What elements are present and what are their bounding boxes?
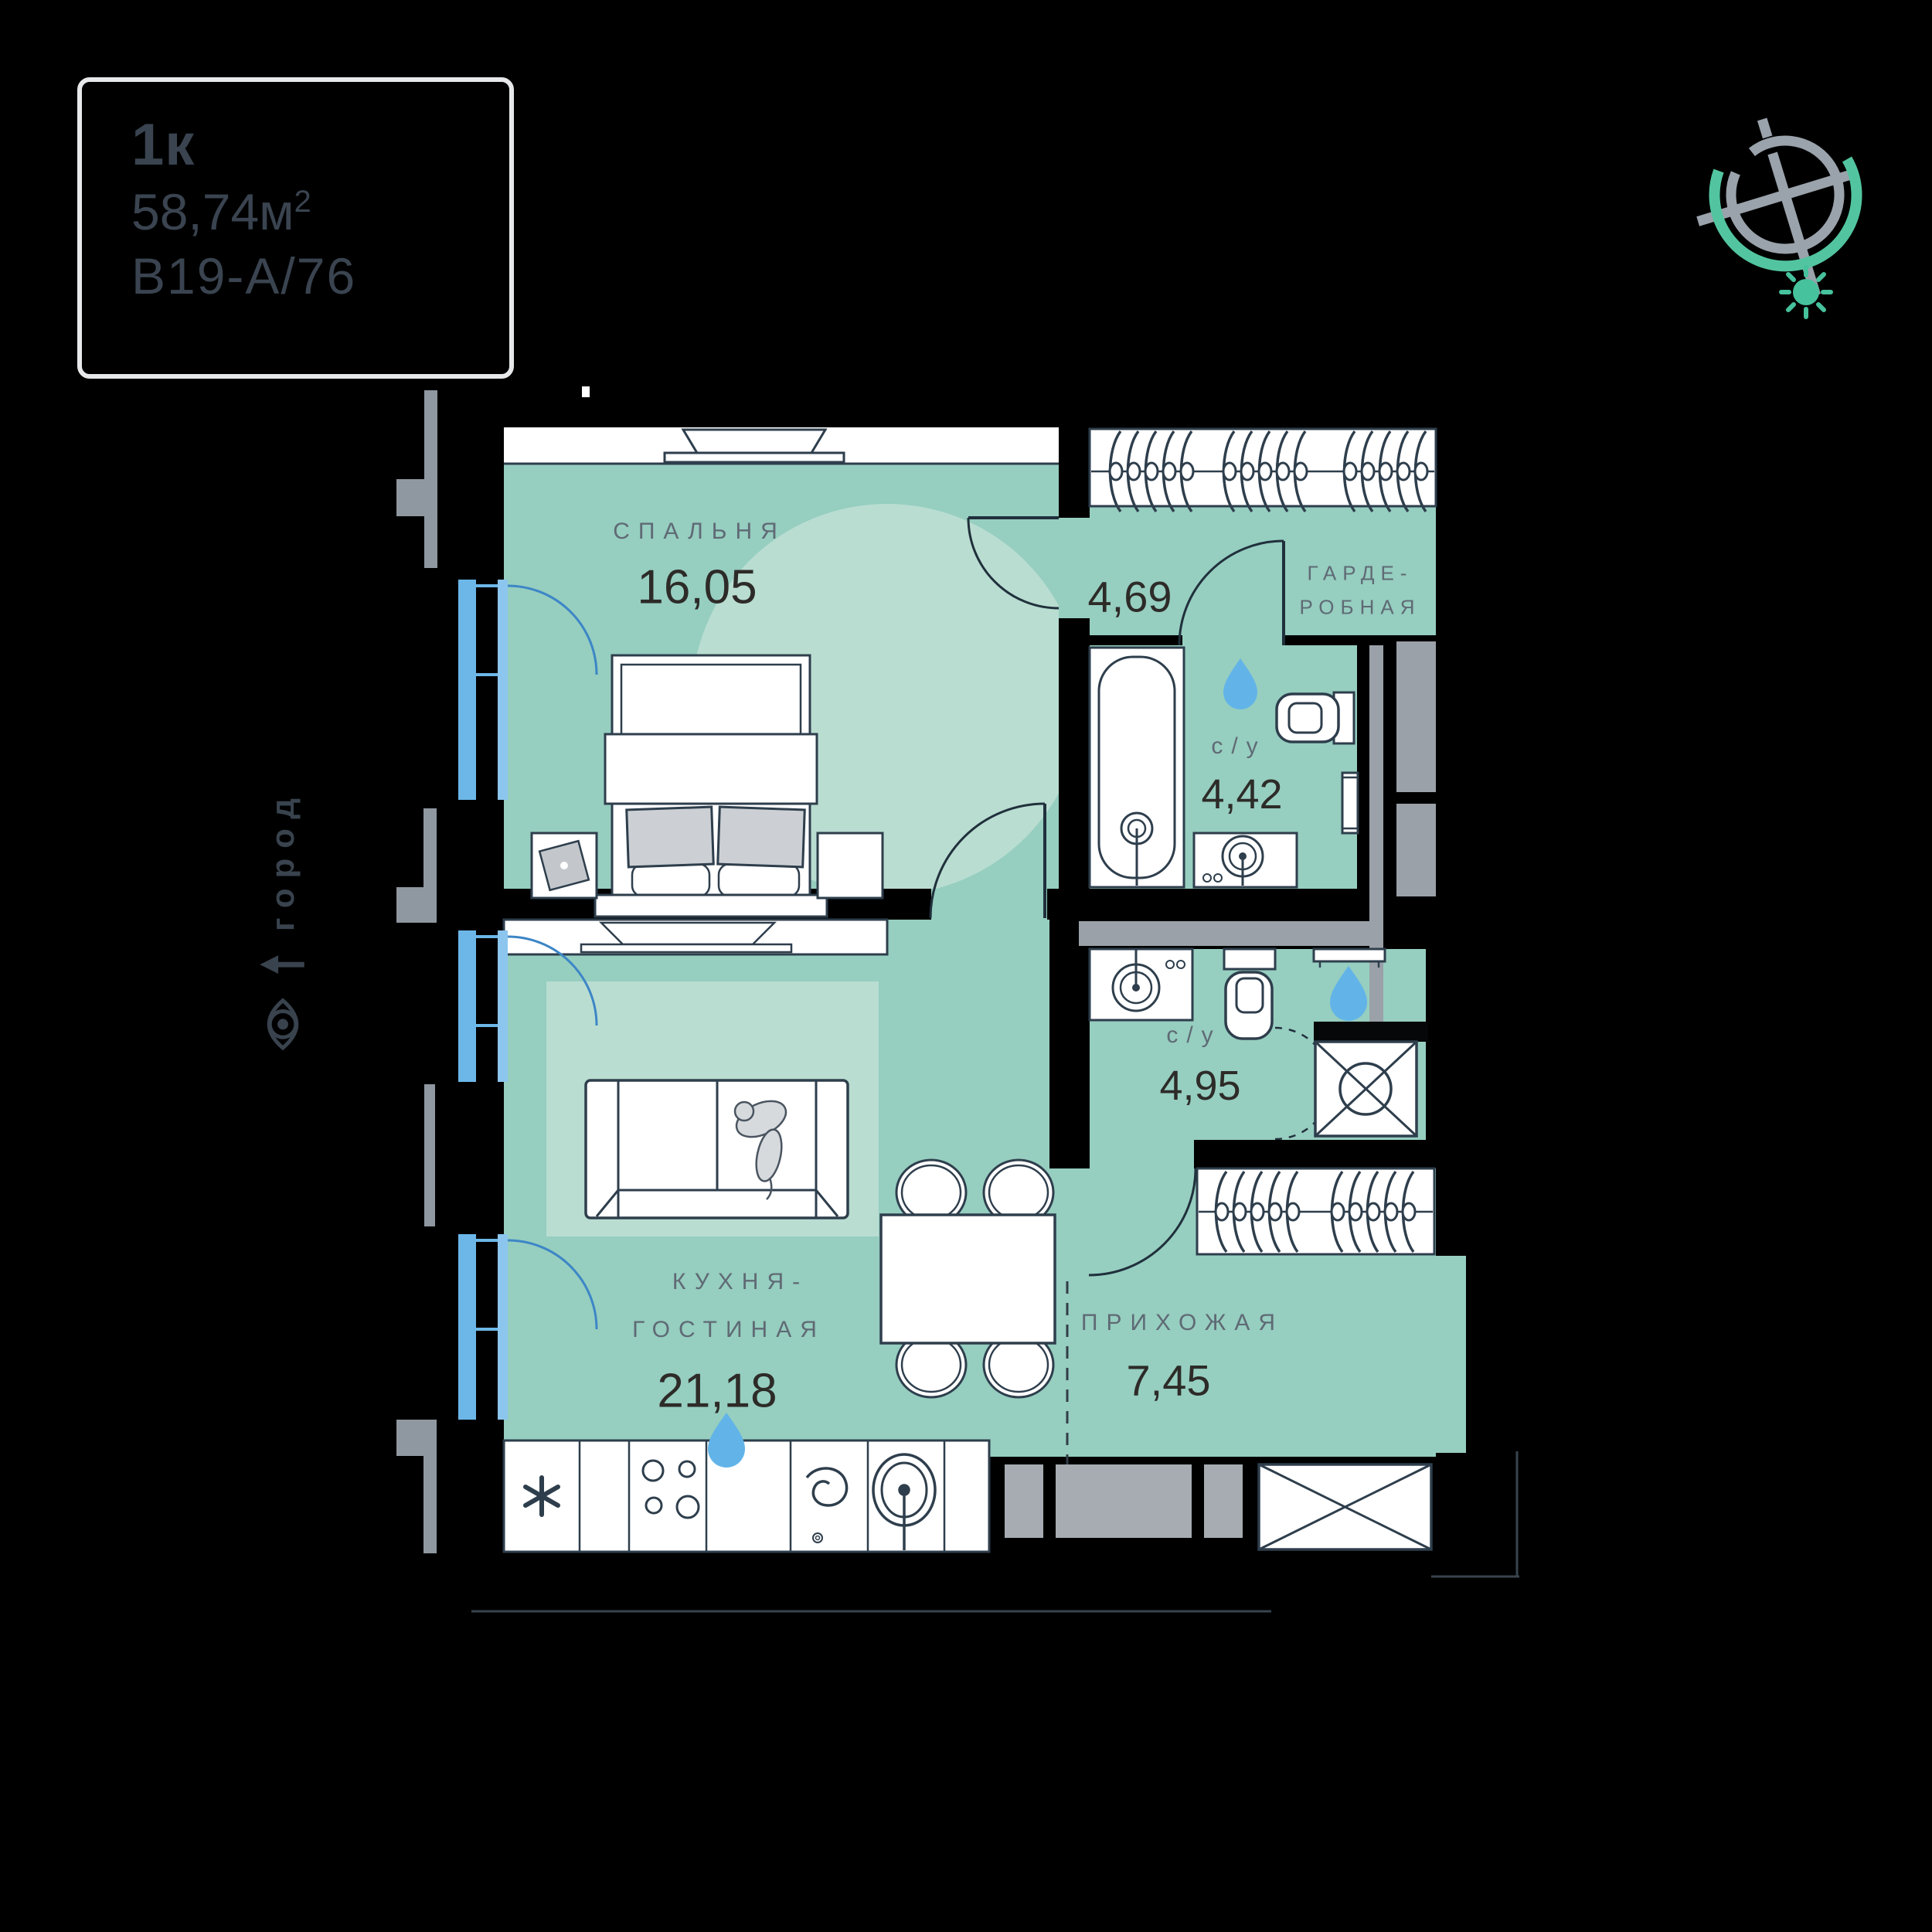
bath-bottom-doorway (1090, 1140, 1194, 1168)
bath-top-area: 4,42 (1201, 770, 1282, 818)
floor-plan (0, 0, 1932, 1932)
kitchen-label-1: КУХНЯ- (672, 1269, 808, 1295)
bath-top-wall-fixture (1342, 773, 1358, 833)
hallway-hanger-band (1197, 1168, 1434, 1254)
nightstand-left (532, 833, 597, 898)
bedroom-doorway (931, 889, 1047, 920)
sofa (586, 1080, 848, 1218)
entrance-door (1005, 1464, 1243, 1538)
bed (595, 655, 827, 917)
sink-top (1194, 833, 1297, 887)
kitchen-counter (504, 1440, 989, 1552)
wardrobe-hanger-band (1090, 429, 1436, 512)
kitchen-label-2: ГОСТИНАЯ (632, 1317, 825, 1343)
toilet-bottom (1224, 949, 1275, 1039)
bath-top-label: с/у (1211, 733, 1266, 760)
wardrobe-label-1: ГАРДЕ- (1308, 562, 1413, 586)
hall-area: 4,69 (1088, 572, 1172, 622)
balcony-wall-segments (396, 390, 437, 1553)
niche-wall (1314, 1022, 1428, 1042)
hallway-label: ПРИХОЖАЯ (1081, 1310, 1284, 1336)
toilet-top (1277, 692, 1354, 743)
bedroom-area: 16,05 (637, 560, 757, 615)
wardrobe-label-2: РОБНАЯ (1300, 596, 1421, 620)
bath-top-doorway (1182, 635, 1284, 645)
bathtub (1090, 648, 1184, 887)
kitchen-area: 21,18 (657, 1364, 777, 1419)
dining-table (881, 1215, 1055, 1343)
washing-machine (1315, 1042, 1417, 1136)
entry-closet (1259, 1464, 1431, 1549)
hallway-area: 7,45 (1127, 1355, 1211, 1406)
nightstand-right (818, 833, 883, 898)
bath-bottom-area: 4,95 (1159, 1062, 1240, 1110)
sink-bottom (1090, 949, 1192, 1020)
bedroom-label: СПАЛЬНЯ (613, 519, 786, 545)
bath-bottom-label: с/у (1166, 1022, 1221, 1049)
bedroom-hall-doorway (1059, 518, 1090, 618)
